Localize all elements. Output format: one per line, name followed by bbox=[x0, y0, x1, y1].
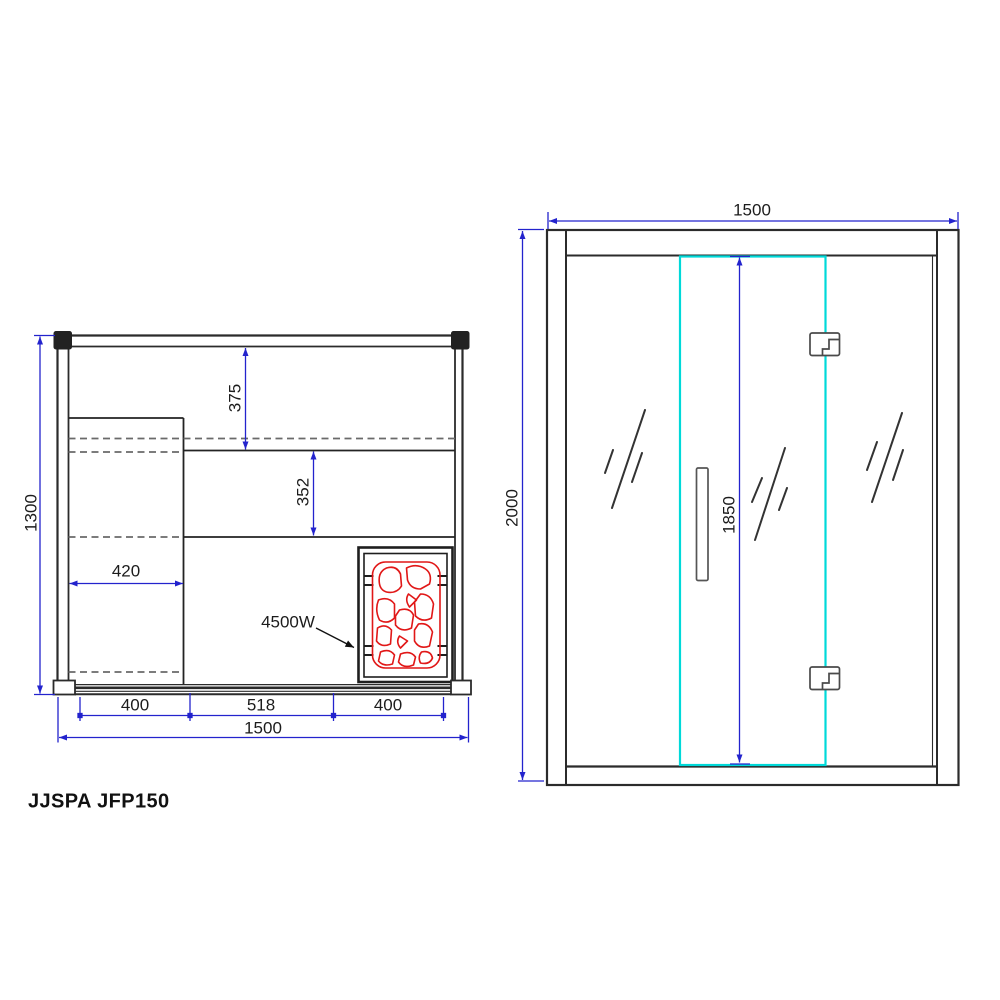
plan-dim-back-bench-label: 375 bbox=[227, 384, 244, 412]
heater-leader-arrow-icon bbox=[316, 628, 354, 648]
elevation-dim-height-label: 2000 bbox=[504, 489, 521, 527]
plan-dim-front-right-label: 400 bbox=[374, 697, 402, 714]
corner-post-top-left-icon bbox=[54, 332, 72, 350]
glass-mark-left-icon bbox=[605, 410, 645, 508]
corner-post-top-right-icon bbox=[452, 332, 470, 350]
technical-drawing-page: 1300 375 352 420 400 518 400 1500 4500W … bbox=[0, 0, 1000, 1000]
plan-view bbox=[34, 332, 471, 743]
plan-dim-mid-bench-label: 352 bbox=[295, 478, 312, 506]
heater bbox=[359, 548, 453, 683]
glass-mark-center-icon bbox=[752, 448, 787, 540]
hinge-top-icon bbox=[810, 333, 840, 356]
plan-dim-front-center-label: 518 bbox=[247, 697, 275, 714]
hinge-bottom-icon bbox=[810, 667, 840, 690]
elevation-frame bbox=[547, 230, 959, 785]
plan-dim-depth-label: 1300 bbox=[23, 494, 40, 532]
elevation-dim-door-height-label: 1850 bbox=[721, 496, 738, 534]
elevation-dim-width-label: 1500 bbox=[733, 202, 771, 219]
plan-dim-front-left-label: 400 bbox=[121, 697, 149, 714]
plan-dim-side-bench-label: 420 bbox=[112, 563, 140, 580]
glass-mark-right-icon bbox=[867, 413, 903, 502]
drawing-canvas bbox=[0, 0, 1000, 1000]
plan-dim-width-label: 1500 bbox=[244, 720, 282, 737]
heater-power-label: 4500W bbox=[261, 614, 315, 631]
model-title: JJSPA JFP150 bbox=[28, 791, 170, 814]
door-handle bbox=[697, 468, 709, 581]
